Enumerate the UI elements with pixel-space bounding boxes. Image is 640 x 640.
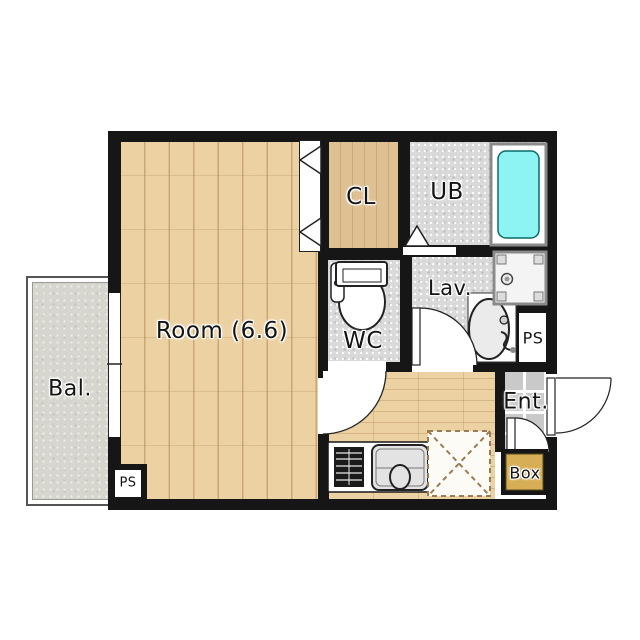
wall-wc-lavatory (400, 256, 412, 372)
balcony-window (108, 293, 121, 437)
wall-top (108, 131, 557, 142)
kitchen-floor (329, 372, 495, 499)
pipe-space-right-label: PS (523, 329, 544, 348)
closet-label: CL (346, 184, 376, 210)
wall-wc-left (318, 256, 328, 372)
wall-pipe-space-top (511, 305, 557, 313)
room-kitchen-doorway (318, 378, 329, 434)
bath-door-opening (403, 247, 456, 255)
floor-plan: Room (6.6) Bal. CL UB WC Lav. PS Ent. Bo… (0, 0, 640, 640)
closet-door (299, 140, 321, 252)
wall-closet-bath (398, 142, 410, 252)
balcony-label: Bal. (48, 377, 92, 402)
wall-bottom (108, 499, 557, 510)
room-label: Room (6.6) (156, 318, 288, 344)
shoe-box-label: Box (509, 464, 540, 483)
wall-right-lower (546, 437, 557, 510)
wc-door-opening (328, 361, 386, 372)
unit-bath-label: UB (430, 179, 464, 205)
wall-closet-left (321, 142, 329, 252)
lavatory-label: Lav. (428, 276, 472, 300)
pipe-space-left-label: PS (119, 476, 136, 491)
lavatory-door-opening (412, 362, 473, 372)
wc-label: WC (343, 328, 383, 354)
entrance-label: Ent. (503, 390, 548, 415)
